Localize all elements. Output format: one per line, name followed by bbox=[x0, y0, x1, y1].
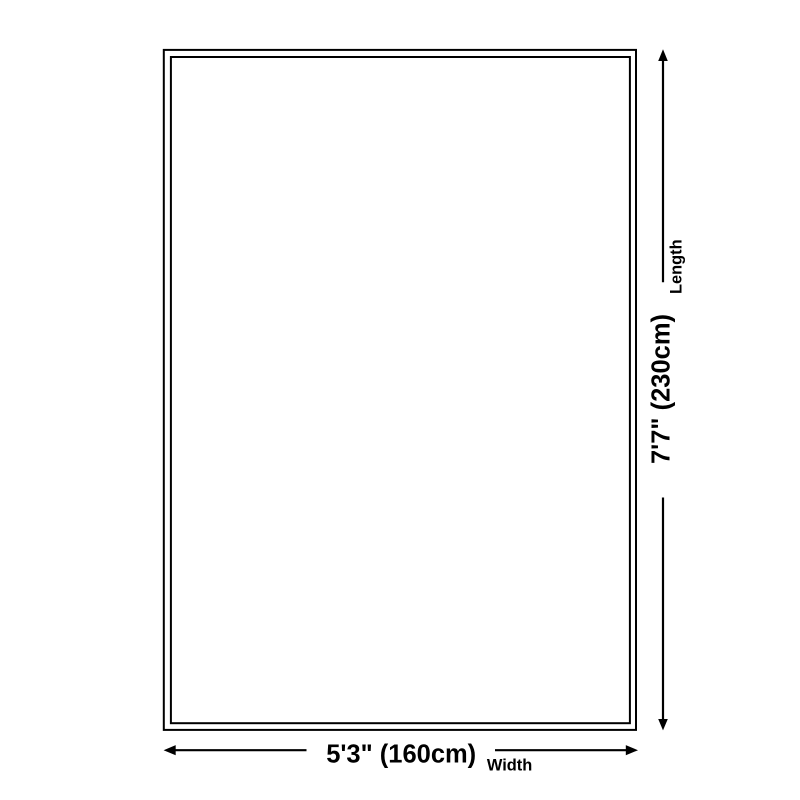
svg-text:5'3" (160cm): 5'3" (160cm) bbox=[326, 741, 476, 769]
svg-text:7'7" (230cm): 7'7" (230cm) bbox=[647, 314, 675, 464]
svg-text:Width: Width bbox=[487, 757, 532, 775]
svg-text:Length: Length bbox=[668, 239, 686, 294]
